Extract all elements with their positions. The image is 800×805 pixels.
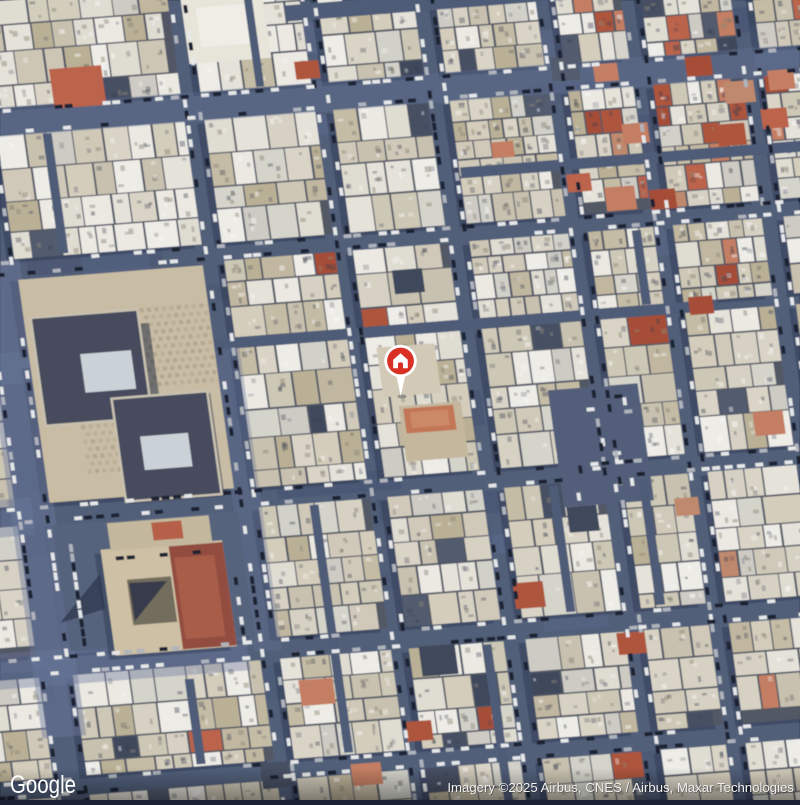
svg-text:Imagery ©2025 Airbus, CNES / A: Imagery ©2025 Airbus, CNES / Airbus, Max… [447, 780, 794, 795]
svg-text:Google: Google [10, 771, 76, 799]
